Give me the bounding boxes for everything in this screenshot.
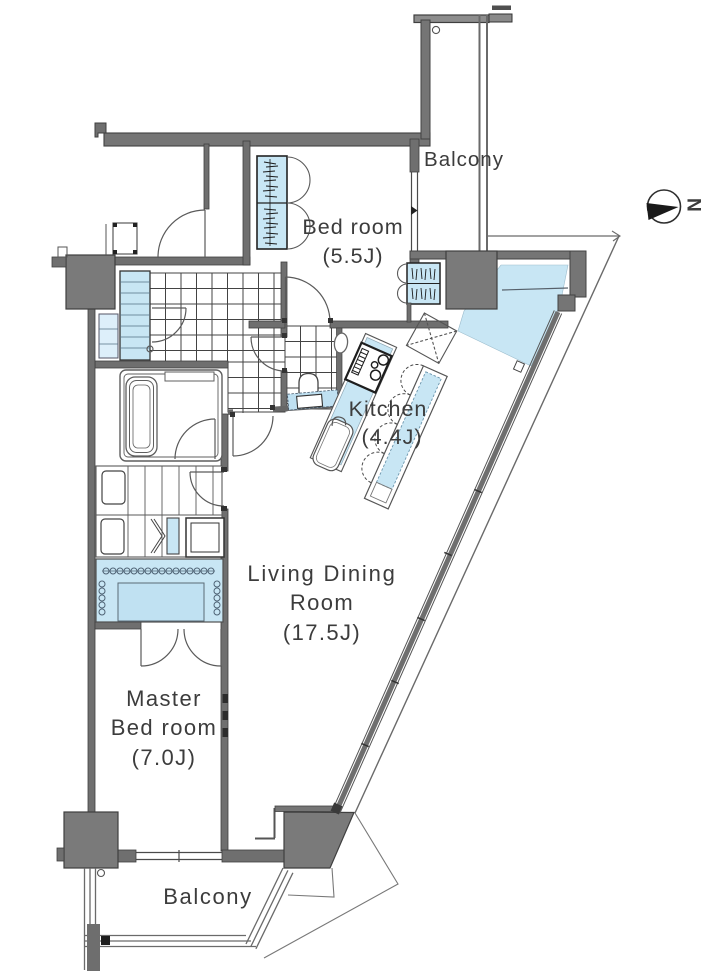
svg-text:(17.5J): (17.5J) [283,620,361,645]
svg-text:Bed room: Bed room [111,715,218,740]
svg-text:N: N [683,198,704,212]
svg-text:Kitchen: Kitchen [349,397,428,421]
svg-text:(4.4J): (4.4J) [362,425,423,449]
svg-text:Balcony: Balcony [163,884,252,909]
svg-text:(5.5J): (5.5J) [323,244,384,268]
svg-text:Living Dining: Living Dining [247,561,396,586]
svg-text:Room: Room [290,590,354,615]
svg-text:(7.0J): (7.0J) [132,745,197,770]
svg-text:Balcony: Balcony [424,148,504,171]
svg-text:Bed room: Bed room [302,215,403,239]
svg-text:Master: Master [126,686,202,711]
